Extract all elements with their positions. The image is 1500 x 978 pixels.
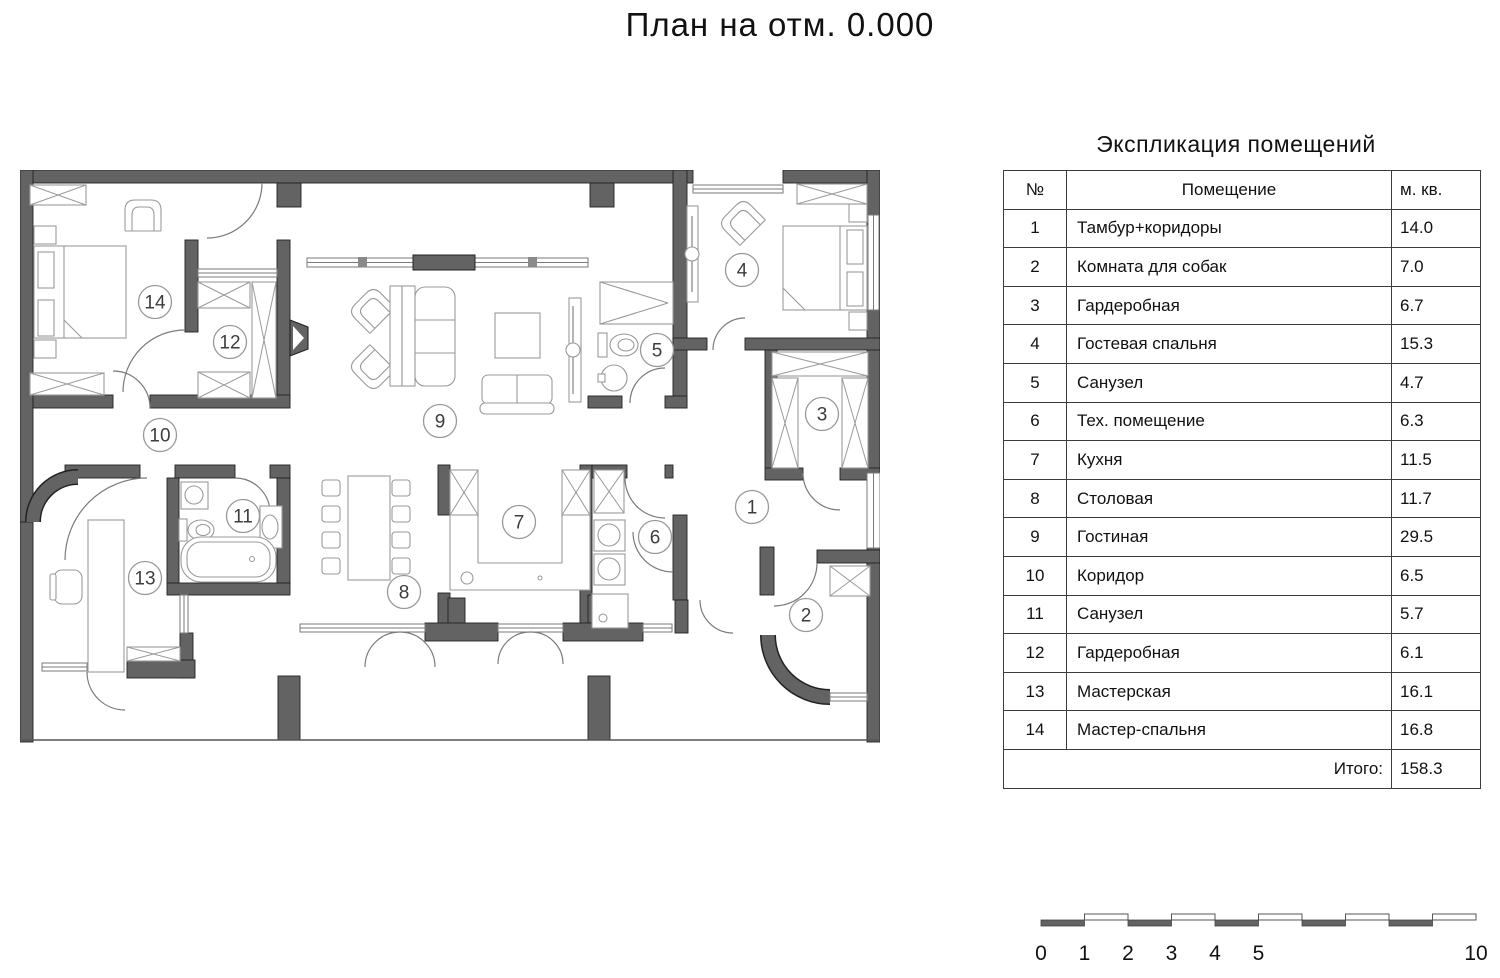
scale-label-end: 10 — [1464, 942, 1487, 965]
room-label-5: 5 — [641, 334, 674, 367]
room-label-6: 6 — [639, 521, 672, 554]
dining-table — [348, 476, 390, 580]
scale-label-0: 0 — [1035, 942, 1047, 965]
scale-label-4: 4 — [1209, 942, 1221, 965]
pillow — [38, 300, 54, 336]
chair — [392, 532, 410, 548]
row-area: 11.5 — [1392, 441, 1481, 480]
svg-text:8: 8 — [399, 583, 410, 604]
scale-label-1: 1 — [1079, 942, 1091, 965]
table-row: 14Мастер-спальня16.8 — [1004, 711, 1481, 750]
table-row: 7Кухня11.5 — [1004, 441, 1481, 480]
chair — [392, 506, 410, 522]
chair — [392, 480, 410, 496]
row-name: Коридор — [1067, 556, 1392, 595]
row-area: 15.3 — [1392, 325, 1481, 364]
row-num: 2 — [1004, 248, 1067, 287]
row-area: 11.7 — [1392, 479, 1481, 518]
row-name: Гардеробная — [1067, 286, 1392, 325]
row-name: Санузел — [1067, 363, 1392, 402]
room-label-14: 14 — [139, 286, 172, 319]
table-row: 11Санузел5.7 — [1004, 595, 1481, 634]
row-num: 12 — [1004, 634, 1067, 673]
row-name: Мастерская — [1067, 672, 1392, 711]
scale-label-2: 2 — [1122, 942, 1134, 965]
console — [390, 286, 402, 386]
room-label-3: 3 — [806, 398, 839, 431]
armchair — [348, 345, 395, 392]
row-num: 6 — [1004, 402, 1067, 441]
row-num: 11 — [1004, 595, 1067, 634]
row-name: Гардеробная — [1067, 634, 1392, 673]
office-chair — [54, 570, 82, 604]
row-area: 16.8 — [1392, 711, 1481, 750]
row-num: 9 — [1004, 518, 1067, 557]
pillow — [38, 252, 54, 288]
svg-text:5: 5 — [652, 341, 663, 362]
row-num: 10 — [1004, 556, 1067, 595]
total-label: Итого: — [1004, 749, 1392, 788]
pillow — [847, 230, 863, 264]
room-label-4: 4 — [726, 254, 759, 287]
row-num: 13 — [1004, 672, 1067, 711]
drawing-sheet: { "page_title": "План на отм. 0.000", "e… — [0, 0, 1500, 978]
kitchen-sink — [461, 572, 473, 584]
chair — [392, 558, 410, 574]
nightstand — [34, 340, 56, 358]
row-name: Комната для собак — [1067, 248, 1392, 287]
chair — [322, 506, 340, 522]
row-num: 14 — [1004, 711, 1067, 750]
room-label-9: 9 — [424, 405, 457, 438]
row-num: 4 — [1004, 325, 1067, 364]
row-area: 6.5 — [1392, 556, 1481, 595]
row-area: 6.7 — [1392, 286, 1481, 325]
svg-text:14: 14 — [144, 293, 166, 314]
sofa-back — [402, 286, 415, 386]
coffee-table — [495, 313, 540, 358]
room-label-2: 2 — [790, 599, 823, 632]
svg-text:9: 9 — [435, 412, 446, 433]
sofa — [415, 287, 455, 386]
svg-text:11: 11 — [233, 507, 253, 528]
pillow — [847, 272, 863, 306]
row-name: Тех. помещение — [1067, 402, 1392, 441]
row-area: 16.1 — [1392, 672, 1481, 711]
row-name: Столовая — [1067, 479, 1392, 518]
armchair — [125, 200, 161, 231]
svg-text:3: 3 — [817, 405, 828, 426]
scale-label-5: 5 — [1253, 942, 1265, 965]
row-name: Мастер-спальня — [1067, 711, 1392, 750]
svg-text:1: 1 — [747, 498, 758, 519]
page-title: План на отм. 0.000 — [300, 6, 1260, 44]
sink — [262, 515, 278, 539]
table-row: 6Тех. помещение6.3 — [1004, 402, 1481, 441]
table-total-row: Итого:158.3 — [1004, 749, 1481, 788]
scale-bar: 01234510 — [1041, 914, 1500, 976]
room-label-13: 13 — [129, 562, 162, 595]
room-label-8: 8 — [388, 576, 421, 609]
sofa-back — [480, 403, 554, 414]
header-num: № — [1004, 171, 1067, 210]
armchair — [718, 198, 765, 245]
room-label-1: 1 — [736, 491, 769, 524]
shower — [600, 282, 673, 324]
row-num: 7 — [1004, 441, 1067, 480]
svg-text:7: 7 — [514, 513, 525, 534]
row-area: 7.0 — [1392, 248, 1481, 287]
row-name: Тамбур+коридоры — [1067, 209, 1392, 248]
row-area: 5.7 — [1392, 595, 1481, 634]
svg-text:6: 6 — [650, 528, 661, 549]
toilet-tank — [179, 519, 187, 541]
row-num: 8 — [1004, 479, 1067, 518]
svg-text:10: 10 — [149, 426, 170, 447]
nightstand — [849, 312, 867, 330]
row-area: 6.3 — [1392, 402, 1481, 441]
row-area: 29.5 — [1392, 518, 1481, 557]
explication-table: № Помещение м. кв. 1Тамбур+коридоры14.02… — [1003, 170, 1481, 789]
row-area: 14.0 — [1392, 209, 1481, 248]
scale-label-3: 3 — [1166, 942, 1178, 965]
room-label-11: 11 — [227, 500, 260, 533]
row-num: 3 — [1004, 286, 1067, 325]
svg-text:12: 12 — [219, 333, 240, 354]
table-row: 3Гардеробная6.7 — [1004, 286, 1481, 325]
row-num: 1 — [1004, 209, 1067, 248]
table-row: 13Мастерская16.1 — [1004, 672, 1481, 711]
counter — [592, 594, 628, 628]
armchair — [348, 286, 395, 333]
row-num: 5 — [1004, 363, 1067, 402]
toilet-tank — [598, 333, 607, 357]
floor-plan: 1234567891011121314 — [20, 170, 880, 748]
table-row: 8Столовая11.7 — [1004, 479, 1481, 518]
chair — [322, 532, 340, 548]
chair — [322, 558, 340, 574]
table-row: 9Гостиная29.5 — [1004, 518, 1481, 557]
total-value: 158.3 — [1392, 749, 1481, 788]
room-label-7: 7 — [503, 506, 536, 539]
table-row: 4Гостевая спальня15.3 — [1004, 325, 1481, 364]
header-area: м. кв. — [1392, 171, 1481, 210]
row-name: Санузел — [1067, 595, 1392, 634]
explication-title: Экспликация помещений — [1003, 131, 1469, 158]
header-name: Помещение — [1067, 171, 1392, 210]
row-name: Гостиная — [1067, 518, 1392, 557]
table-row: 1Тамбур+коридоры14.0 — [1004, 209, 1481, 248]
table-header-row: № Помещение м. кв. — [1004, 171, 1481, 210]
svg-text:13: 13 — [134, 569, 155, 590]
row-name: Кухня — [1067, 441, 1392, 480]
room-label-10: 10 — [144, 419, 177, 452]
room-label-12: 12 — [214, 326, 247, 359]
row-name: Гостевая спальня — [1067, 325, 1392, 364]
table-row: 5Санузел4.7 — [1004, 363, 1481, 402]
table-row: 2Комната для собак7.0 — [1004, 248, 1481, 287]
row-area: 4.7 — [1392, 363, 1481, 402]
svg-text:4: 4 — [737, 261, 748, 282]
chair — [322, 480, 340, 496]
row-area: 6.1 — [1392, 634, 1481, 673]
svg-text:2: 2 — [801, 606, 812, 627]
floor-plan-drawing: 1234567891011121314 — [20, 170, 880, 748]
table-row: 10Коридор6.5 — [1004, 556, 1481, 595]
desk — [88, 520, 124, 672]
table-row: 12Гардеробная6.1 — [1004, 634, 1481, 673]
nightstand — [849, 204, 867, 222]
nightstand — [34, 226, 56, 244]
